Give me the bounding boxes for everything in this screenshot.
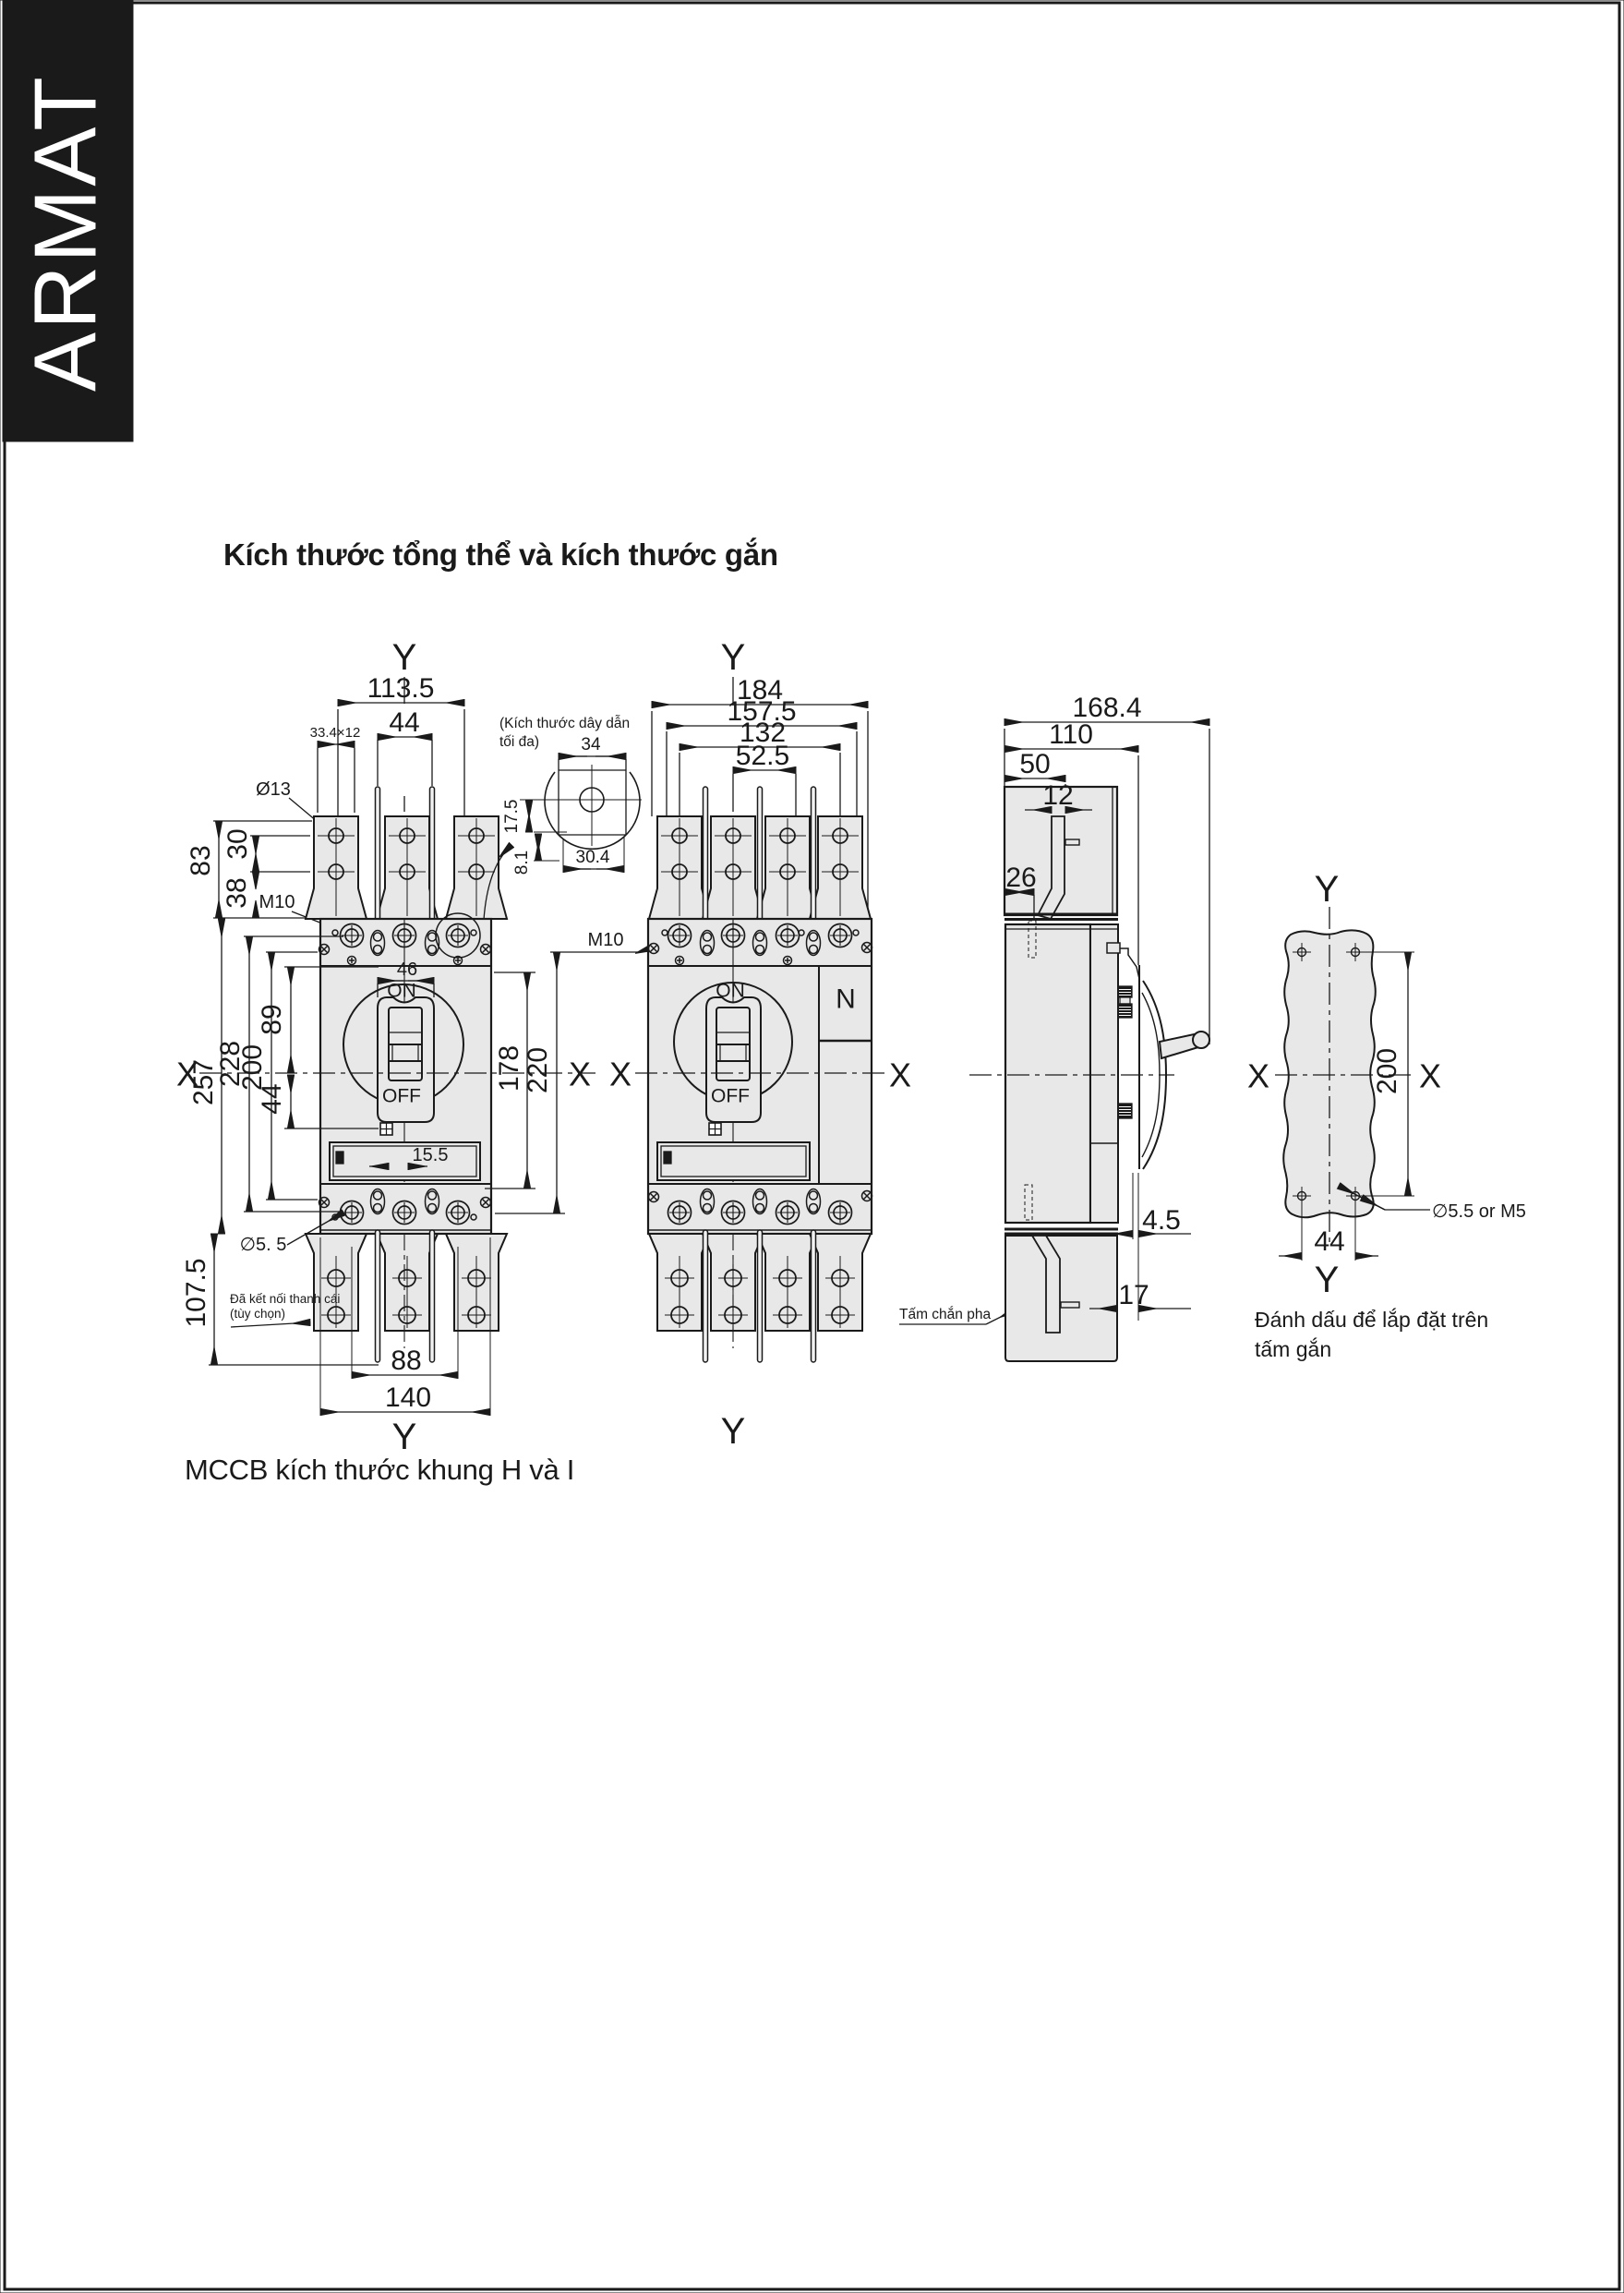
svg-text:MCCB kích thước khung H và I: MCCB kích thước khung H và I — [185, 1454, 574, 1486]
svg-text:4.5: 4.5 — [1142, 1205, 1181, 1236]
svg-text:83: 83 — [186, 845, 216, 875]
svg-text:X: X — [609, 1056, 632, 1093]
svg-text:110: 110 — [1049, 719, 1093, 750]
svg-text:Y: Y — [721, 637, 746, 678]
svg-text:tấm gắn: tấm gắn — [1255, 1337, 1331, 1361]
svg-text:OFF: OFF — [382, 1086, 421, 1107]
svg-text:107.5: 107.5 — [181, 1258, 211, 1327]
svg-text:M10: M10 — [259, 892, 295, 912]
svg-text:33.4×12: 33.4×12 — [310, 725, 361, 741]
svg-text:140: 140 — [385, 1382, 431, 1413]
svg-text:Y: Y — [1315, 869, 1340, 910]
svg-text:38: 38 — [222, 877, 252, 908]
svg-text:26: 26 — [1005, 863, 1036, 893]
svg-text:220: 220 — [523, 1047, 553, 1093]
svg-text:Y: Y — [721, 1411, 746, 1452]
svg-text:tối đa): tối đa) — [499, 734, 539, 750]
svg-text:X: X — [1247, 1057, 1269, 1095]
svg-text:Ø13: Ø13 — [256, 779, 291, 800]
svg-text:M10: M10 — [588, 930, 624, 950]
svg-text:15.5: 15.5 — [413, 1145, 449, 1165]
svg-text:X: X — [569, 1056, 591, 1093]
svg-text:34: 34 — [581, 735, 601, 754]
svg-text:30: 30 — [223, 828, 253, 859]
svg-text:89: 89 — [257, 1004, 287, 1034]
svg-text:∅5. 5: ∅5. 5 — [240, 1235, 287, 1255]
svg-text:(tùy chọn): (tùy chọn) — [230, 1307, 285, 1321]
svg-text:200: 200 — [1372, 1048, 1402, 1094]
svg-text:44: 44 — [389, 707, 419, 738]
svg-text:52.5: 52.5 — [736, 741, 789, 771]
svg-text:Kích thước tổng thể và kích th: Kích thước tổng thể và kích thước gắn — [223, 537, 778, 572]
svg-text:∅5.5 or M5: ∅5.5 or M5 — [1432, 1201, 1526, 1222]
svg-text:8.1: 8.1 — [512, 851, 532, 875]
svg-text:50: 50 — [1019, 749, 1050, 779]
svg-text:17.5: 17.5 — [502, 800, 522, 834]
svg-text:Tấm chắn pha: Tấm chắn pha — [899, 1307, 991, 1322]
svg-text:178: 178 — [494, 1045, 524, 1092]
svg-text:113.5: 113.5 — [367, 673, 435, 704]
svg-text:Đã kết nối thanh cái: Đã kết nối thanh cái — [230, 1292, 340, 1306]
svg-text:44: 44 — [257, 1083, 287, 1114]
svg-text:12: 12 — [1042, 780, 1073, 811]
svg-text:X: X — [1419, 1057, 1441, 1095]
svg-text:ARMAT: ARMAT — [17, 74, 115, 392]
svg-text:44: 44 — [1314, 1226, 1344, 1257]
svg-text:N: N — [836, 984, 856, 1015]
svg-text:Y: Y — [392, 1417, 417, 1457]
svg-text:17: 17 — [1118, 1280, 1149, 1310]
svg-text:30.4: 30.4 — [576, 848, 610, 867]
svg-text:X: X — [889, 1056, 911, 1094]
svg-text:(Kích thước dây dẫn: (Kích thước dây dẫn — [499, 716, 630, 731]
svg-text:88: 88 — [391, 1346, 421, 1376]
svg-text:Y: Y — [1315, 1260, 1340, 1300]
svg-text:Y: Y — [392, 637, 417, 678]
svg-text:OFF: OFF — [711, 1086, 750, 1107]
svg-text:Đánh dấu để lắp đặt trên: Đánh dấu để lắp đặt trên — [1255, 1308, 1488, 1332]
svg-text:46: 46 — [397, 959, 417, 980]
